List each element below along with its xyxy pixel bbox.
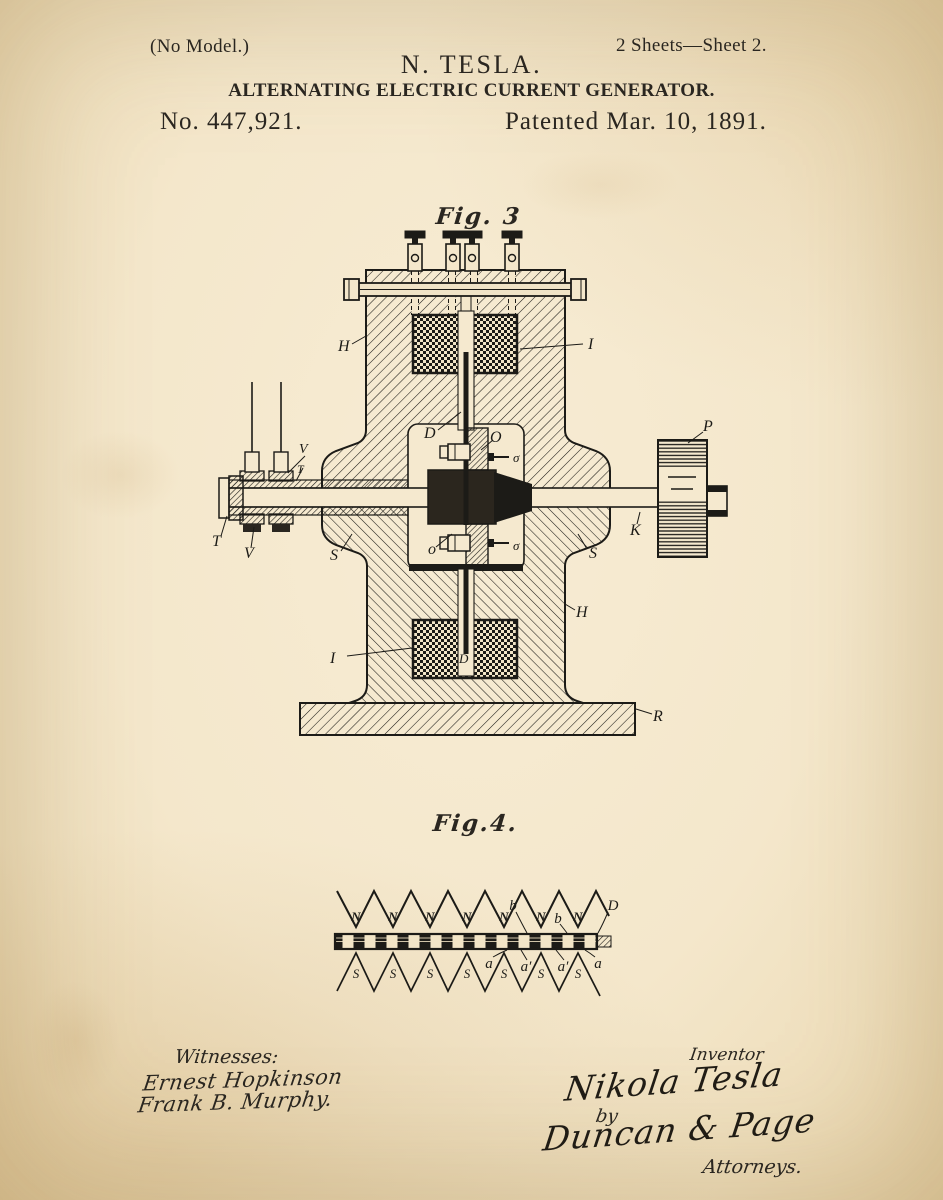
attorneys-label: Attorneys. xyxy=(701,1156,803,1178)
north-pole-zigzag xyxy=(337,891,609,927)
north-pole-letter: N xyxy=(461,909,472,924)
south-pole-letter: S xyxy=(575,966,582,981)
tube-end-cap xyxy=(219,478,229,518)
fig3-drawing: H I D O σ o σ S S K P V T T V H I D R xyxy=(212,231,727,735)
base-flange xyxy=(300,703,635,735)
hub-bolt-lower xyxy=(440,535,470,551)
binding-posts xyxy=(405,231,522,271)
part-label-t-lower: T xyxy=(212,533,222,550)
binding-post xyxy=(405,231,425,271)
fig4-drawing: N N N N N N N S S S S S S S b b D a a′ xyxy=(335,891,619,996)
insulating-collar-lower xyxy=(240,514,264,524)
part-label-r: R xyxy=(652,708,663,725)
part-label-b: b xyxy=(554,911,562,927)
south-pole-letter: S xyxy=(390,966,397,981)
armature-core-upper xyxy=(464,352,469,432)
part-label-i-lower: I xyxy=(329,650,336,667)
armature-core-lower xyxy=(464,569,469,654)
north-pole-letter: N xyxy=(535,909,546,924)
north-pole-letter: N xyxy=(424,909,435,924)
part-label-s-right: S xyxy=(589,545,597,562)
collar-nub xyxy=(272,524,290,532)
hub-bolt-upper xyxy=(440,444,470,460)
binding-post xyxy=(502,231,522,271)
part-label-v-lower: V xyxy=(244,545,256,562)
part-label-a-prime: a′ xyxy=(558,959,570,975)
armature-strip xyxy=(335,934,597,949)
north-pole-letter: N xyxy=(572,909,583,924)
binding-post xyxy=(443,231,463,271)
part-label-h-upper: H xyxy=(337,338,351,355)
patent-sheet: (No Model.) 2 Sheets—Sheet 2. N. TESLA. … xyxy=(0,0,943,1200)
part-label-b: b xyxy=(509,898,517,914)
part-label-p: P xyxy=(702,418,713,435)
south-pole-letter: S xyxy=(501,966,508,981)
part-label-a: a xyxy=(485,956,493,972)
part-label-sigma-lower: σ xyxy=(513,538,520,553)
part-label-i-upper: I xyxy=(587,336,594,353)
brush-post xyxy=(245,452,259,472)
south-pole-letter: S xyxy=(353,966,360,981)
part-label-s-left: S xyxy=(330,547,338,564)
part-label-d-upper: D xyxy=(423,425,436,442)
part-label-t-upper: T xyxy=(297,462,305,476)
insulating-collar-lower xyxy=(269,514,293,524)
north-pole-letter: N xyxy=(387,909,398,924)
binding-post xyxy=(462,231,482,271)
witnesses-heading: Witnesses: xyxy=(174,1046,280,1068)
part-label-a: a xyxy=(594,956,602,972)
part-label-o-cap: O xyxy=(490,429,502,446)
south-pole-letter: S xyxy=(427,966,434,981)
north-pole-letter: N xyxy=(498,909,509,924)
south-pole-letter: S xyxy=(464,966,471,981)
strip-end-tab xyxy=(597,936,611,947)
part-label-h-lower: H xyxy=(575,604,589,621)
north-pole-letter: N xyxy=(350,909,361,924)
part-label-d: D xyxy=(607,898,619,914)
pulley xyxy=(658,440,707,557)
part-label-sigma-upper: σ xyxy=(513,450,520,465)
part-label-a-prime: a′ xyxy=(521,959,533,975)
shaft-stub xyxy=(707,486,727,516)
collar-nub xyxy=(243,524,261,532)
patent-drawing: H I D O σ o σ S S K P V T T V H I D R xyxy=(0,0,943,1200)
part-label-d-lower: D xyxy=(458,651,469,666)
part-label-v-upper: V xyxy=(299,442,309,457)
south-pole-letter: S xyxy=(538,966,545,981)
part-label-k: K xyxy=(629,522,642,539)
brush-post xyxy=(274,452,288,472)
clamp-bolt-bar xyxy=(344,279,586,300)
part-label-o-lower: o xyxy=(428,541,436,558)
